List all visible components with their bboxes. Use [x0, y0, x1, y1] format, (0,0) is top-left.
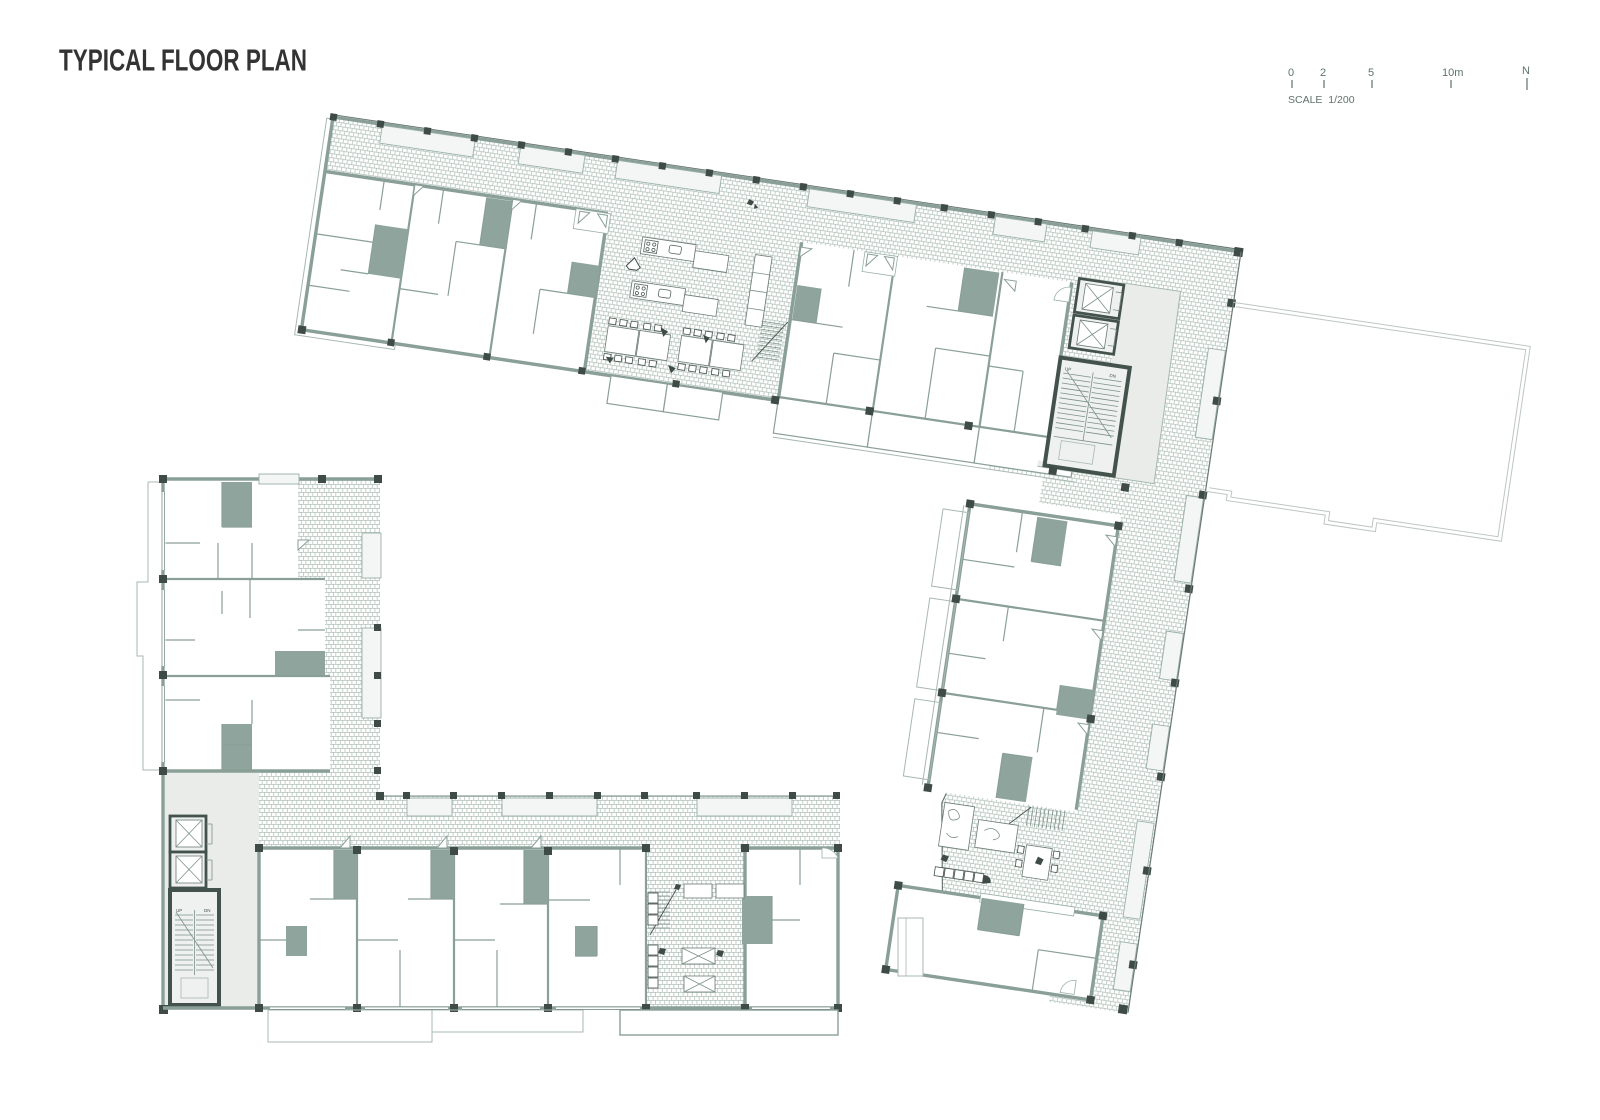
svg-text:TYPICAL FLOOR PLAN: TYPICAL FLOOR PLAN — [59, 43, 307, 78]
svg-text:UP: UP — [176, 908, 182, 913]
svg-text:SCALE 1/200: SCALE 1/200 — [1288, 94, 1355, 106]
svg-text:5: 5 — [1368, 67, 1374, 79]
svg-text:UP: UP — [1065, 366, 1072, 372]
svg-text:2: 2 — [1320, 67, 1326, 79]
svg-text:DN: DN — [1109, 373, 1116, 379]
svg-text:DN: DN — [204, 908, 211, 913]
svg-text:10m: 10m — [1442, 67, 1463, 79]
svg-text:0: 0 — [1288, 67, 1294, 79]
svg-text:N: N — [1522, 65, 1530, 77]
